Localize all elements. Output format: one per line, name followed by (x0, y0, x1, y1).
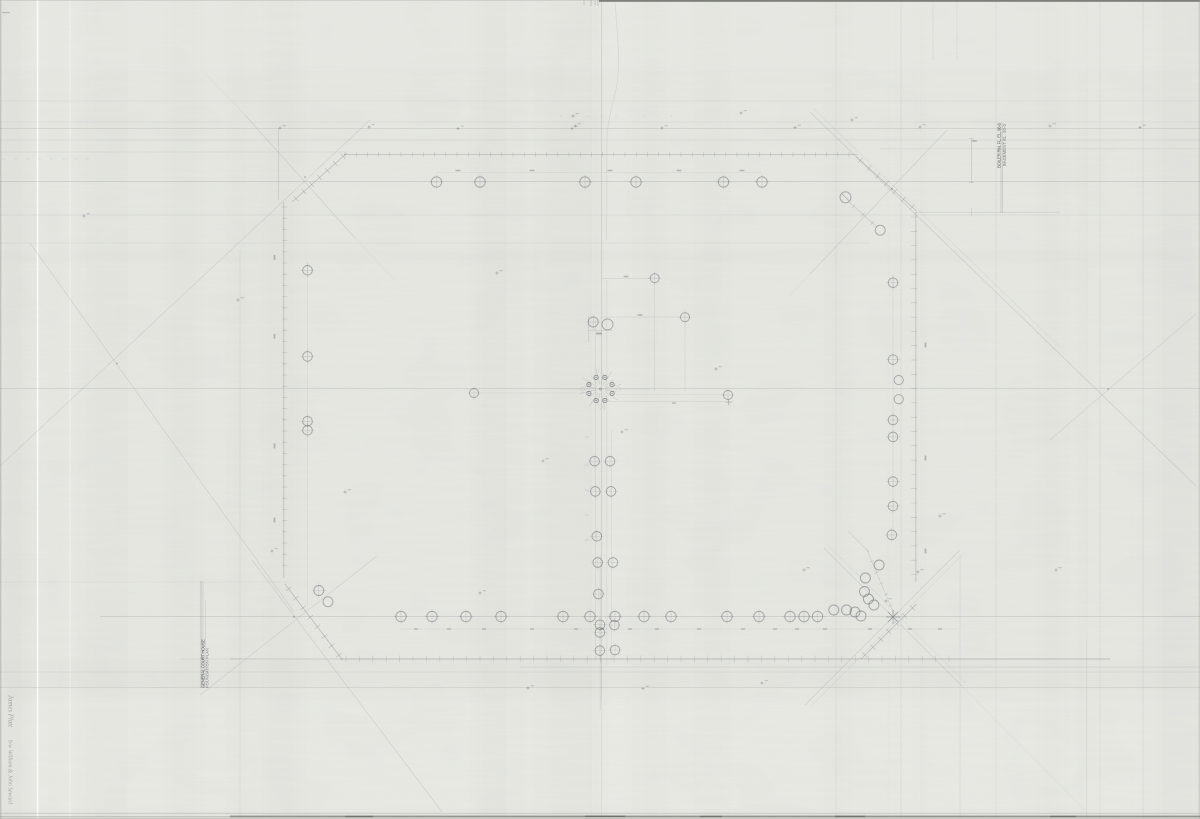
svg-text:BOILER RM. FL. EL. 96-6: BOILER RM. FL. EL. 96-6 (997, 122, 1002, 168)
svg-text:BASEMENT EL. 92-0: BASEMENT EL. 92-0 (1002, 123, 1007, 166)
svg-text:b/w William & John Seward: b/w William & John Seward (7, 740, 13, 804)
svg-text:James Platt: James Platt (7, 695, 14, 728)
svg-text:FOUNDATION PLAN: FOUNDATION PLAN (205, 648, 210, 688)
